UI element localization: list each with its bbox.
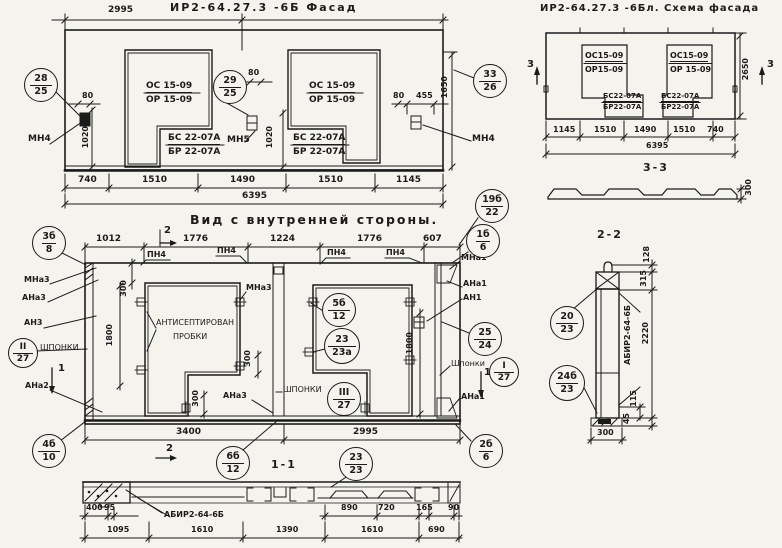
inner-dim-1012: 1012	[96, 235, 121, 244]
schema-marker-3-right: 3	[767, 60, 774, 70]
schema-dimensions	[534, 33, 765, 158]
callout-2b-6: 2б6	[469, 434, 503, 468]
schema-marker-3-left: 3	[527, 60, 534, 70]
drawing-sheet: ИР2-64.27.3 -6Б Фасад 2995 ОС 15-09 ОР 1…	[0, 0, 782, 548]
facade-dim-80-right: 80	[393, 92, 404, 100]
drawing-linework	[0, 0, 782, 548]
facade-win1-mark-bot: ОР 15-09	[146, 96, 192, 105]
s11-dim-690: 690	[428, 526, 445, 534]
callout-6b-12: 6б12	[216, 446, 250, 480]
facade-dim-1650: 1650	[441, 76, 449, 98]
facade-dim-1020-left: 1020	[82, 126, 90, 148]
s11-dim-1610b: 1610	[361, 526, 383, 534]
inner-title: Вид с внутренней стороны.	[190, 214, 438, 227]
callout-24b-23: 24б23	[549, 365, 585, 401]
callout-5b-12: 5б12	[322, 293, 356, 327]
inner-label-ana2: АНа2	[25, 382, 49, 390]
facade-label-mn4-right: МН4	[472, 135, 495, 144]
inner-label-shponki-right: Шпонки	[451, 360, 485, 368]
inner-outline	[85, 263, 460, 424]
section-3-3	[548, 185, 746, 203]
callout-4b-10: 4б10	[32, 434, 66, 468]
inner-dim-1800-right: 1800	[406, 332, 414, 354]
section-2-2-label: АБИР2-64-6Б	[624, 305, 632, 365]
s22-dim-115: 115	[630, 390, 638, 407]
callout-19b-22: 19б22	[475, 189, 509, 223]
inner-dim-1776a: 1776	[183, 235, 208, 244]
schema-dim-2650: 2650	[742, 58, 750, 80]
section-1-1-label: АБИР2-64-6Б	[164, 511, 224, 519]
facade-win2-sub-bot: БР 22-07А	[293, 148, 345, 157]
inner-dim-1776b: 1776	[357, 235, 382, 244]
facade-win1-sub-top: БС 22-07А	[168, 134, 220, 145]
inner-dim-2995: 2995	[353, 428, 378, 437]
inner-antiseptic-line2: ПРОБКИ	[173, 333, 207, 341]
s11-dim-1610a: 1610	[191, 526, 213, 534]
s22-dim-128: 128	[643, 246, 651, 263]
inner-label-pn4-1: ПН4	[147, 251, 166, 259]
s11-dim-890: 890	[341, 504, 358, 512]
facade-title: ИР2-64.27.3 -6Б Фасад	[170, 2, 358, 13]
inner-marker-1-left: 1	[58, 364, 65, 374]
schema-win1-sub-top: БС22-07А	[603, 93, 641, 102]
schema-dim-6395: 6395	[646, 142, 668, 150]
inner-plugs	[135, 298, 416, 414]
schema-win2-sub-bot: БР22-07А	[661, 104, 699, 111]
s11-dim-1390: 1390	[276, 526, 298, 534]
callout-1b-6: 1б6	[466, 224, 500, 258]
callout-i-27: I27	[489, 357, 519, 387]
inner-label-mna3-mid: МНа3	[246, 284, 272, 292]
section-1-1-title: 1-1	[271, 459, 297, 470]
schema-dim-1145: 1145	[553, 126, 575, 134]
callout-ii-27: II27	[8, 338, 38, 368]
s11-dim-165: 165	[416, 504, 433, 512]
schema-win1-sub-bot: БР22-07А	[603, 104, 641, 111]
facade-dim-455: 455	[416, 92, 433, 100]
facade-win1-mark-top: ОС 15-09	[146, 82, 192, 93]
facade-win2-mark-top: ОС 15-09	[309, 82, 355, 93]
facade-dim-1490: 1490	[230, 176, 255, 185]
inner-dim-3400: 3400	[176, 428, 201, 437]
s11-dim-720: 720	[378, 504, 395, 512]
facade-win2-mark-bot: ОР 15-09	[309, 96, 355, 105]
callout-28-25: 2825	[24, 68, 58, 102]
inner-dim-300-mid: 300	[244, 350, 252, 367]
callout-33-26: 3326	[473, 64, 507, 98]
inner-marker-2-top: 2	[164, 226, 171, 236]
facade-dim-1510b: 1510	[318, 176, 343, 185]
inner-label-an1: АН1	[463, 294, 481, 302]
callout-23-23: 2323	[339, 447, 373, 481]
inner-label-ana1-bottom: АНа1	[461, 393, 485, 401]
schema-dim-1490: 1490	[634, 126, 656, 134]
s22-dim-315: 315	[640, 270, 648, 287]
callout-29-25: 2925	[213, 70, 247, 104]
schema-win2-mark-top: ОС15-09	[670, 52, 708, 62]
section-2-2-title: 2-2	[597, 229, 623, 240]
section-2-2	[572, 260, 657, 444]
s22-dim-2220: 2220	[642, 322, 650, 344]
facade-dim-740: 740	[78, 176, 97, 185]
facade-dim-2995: 2995	[108, 6, 133, 15]
callout-3b-8: 3б8	[32, 226, 66, 260]
inner-label-pn4-4: ПН4	[386, 249, 405, 257]
s11-dim-90: 90	[448, 504, 459, 512]
facade-outline	[65, 30, 443, 171]
inner-dim-300-top: 300	[120, 280, 128, 297]
inner-label-ana1-top: АНа1	[463, 280, 487, 288]
facade-label-mn4-left: МН4	[28, 135, 51, 144]
inner-marker-2-bottom: 2	[166, 444, 173, 454]
facade-win1-sub-bot: БР 22-07А	[168, 148, 220, 157]
section-3-3-title: 3-3	[643, 162, 669, 173]
inner-label-ana3-mid: АНа3	[223, 392, 247, 400]
inner-dim-607: 607	[423, 235, 442, 244]
schema-win2-mark-bot: ОР 15-09	[670, 66, 711, 74]
facade-label-mn5: МН5	[227, 136, 250, 145]
callout-25-24: 2524	[468, 322, 502, 356]
inner-markers	[49, 230, 484, 461]
schema-win1-mark-top: ОС15-09	[585, 52, 623, 62]
inner-antiseptic-line1: АНТИСЕПТИРОВАН	[156, 319, 234, 327]
inner-label-shponki-mid: ШПОНКИ	[283, 386, 322, 394]
inner-label-shponki-left: ШПОНКИ	[40, 344, 79, 352]
callout-23-23a: 2323а	[324, 328, 360, 364]
facade-dim-1145: 1145	[396, 176, 421, 185]
s11-dim-95: 95	[104, 504, 115, 512]
inner-label-mna3-left: МНа3	[24, 276, 50, 284]
schema-dim-1510b: 1510	[673, 126, 695, 134]
schema-dim-1510a: 1510	[594, 126, 616, 134]
schema-title: ИР2-64.27.3 -6Бл. Схема фасада	[540, 4, 759, 14]
s22-dim-45: 45	[623, 413, 631, 424]
inner-dim-1800-left: 1800	[106, 324, 114, 346]
inner-dim-1224: 1224	[270, 235, 295, 244]
inner-label-ana3-left: АНа3	[22, 294, 46, 302]
section-3-3-dim-300: 300	[745, 179, 753, 196]
section-1-1	[80, 482, 462, 542]
facade-dim-1510a: 1510	[142, 176, 167, 185]
facade-dim-80-mid: 80	[248, 69, 259, 77]
schema-win2-sub-top: БС22-07А	[661, 93, 699, 102]
facade-dim-1020-mid: 1020	[266, 126, 274, 148]
inner-label-pn4-3: ПН4	[327, 249, 346, 257]
inner-label-pn4-2: ПН4	[217, 247, 236, 255]
facade-win2-sub-top: БС 22-07А	[293, 134, 345, 145]
facade-dim-80-left: 80	[82, 92, 93, 100]
s11-dim-1095: 1095	[107, 526, 129, 534]
inner-dim-300-bot: 300	[192, 390, 200, 407]
s22-dim-300: 300	[597, 429, 614, 437]
callout-iii-27: III27	[327, 382, 361, 416]
callout-20-23: 2023	[550, 306, 584, 340]
s11-dim-400: 400	[86, 504, 103, 512]
inner-label-an3: АН3	[24, 319, 42, 327]
schema-win1-mark-bot: ОР15-09	[585, 66, 623, 74]
schema-dim-740: 740	[707, 126, 724, 134]
facade-dim-6395: 6395	[242, 192, 267, 201]
